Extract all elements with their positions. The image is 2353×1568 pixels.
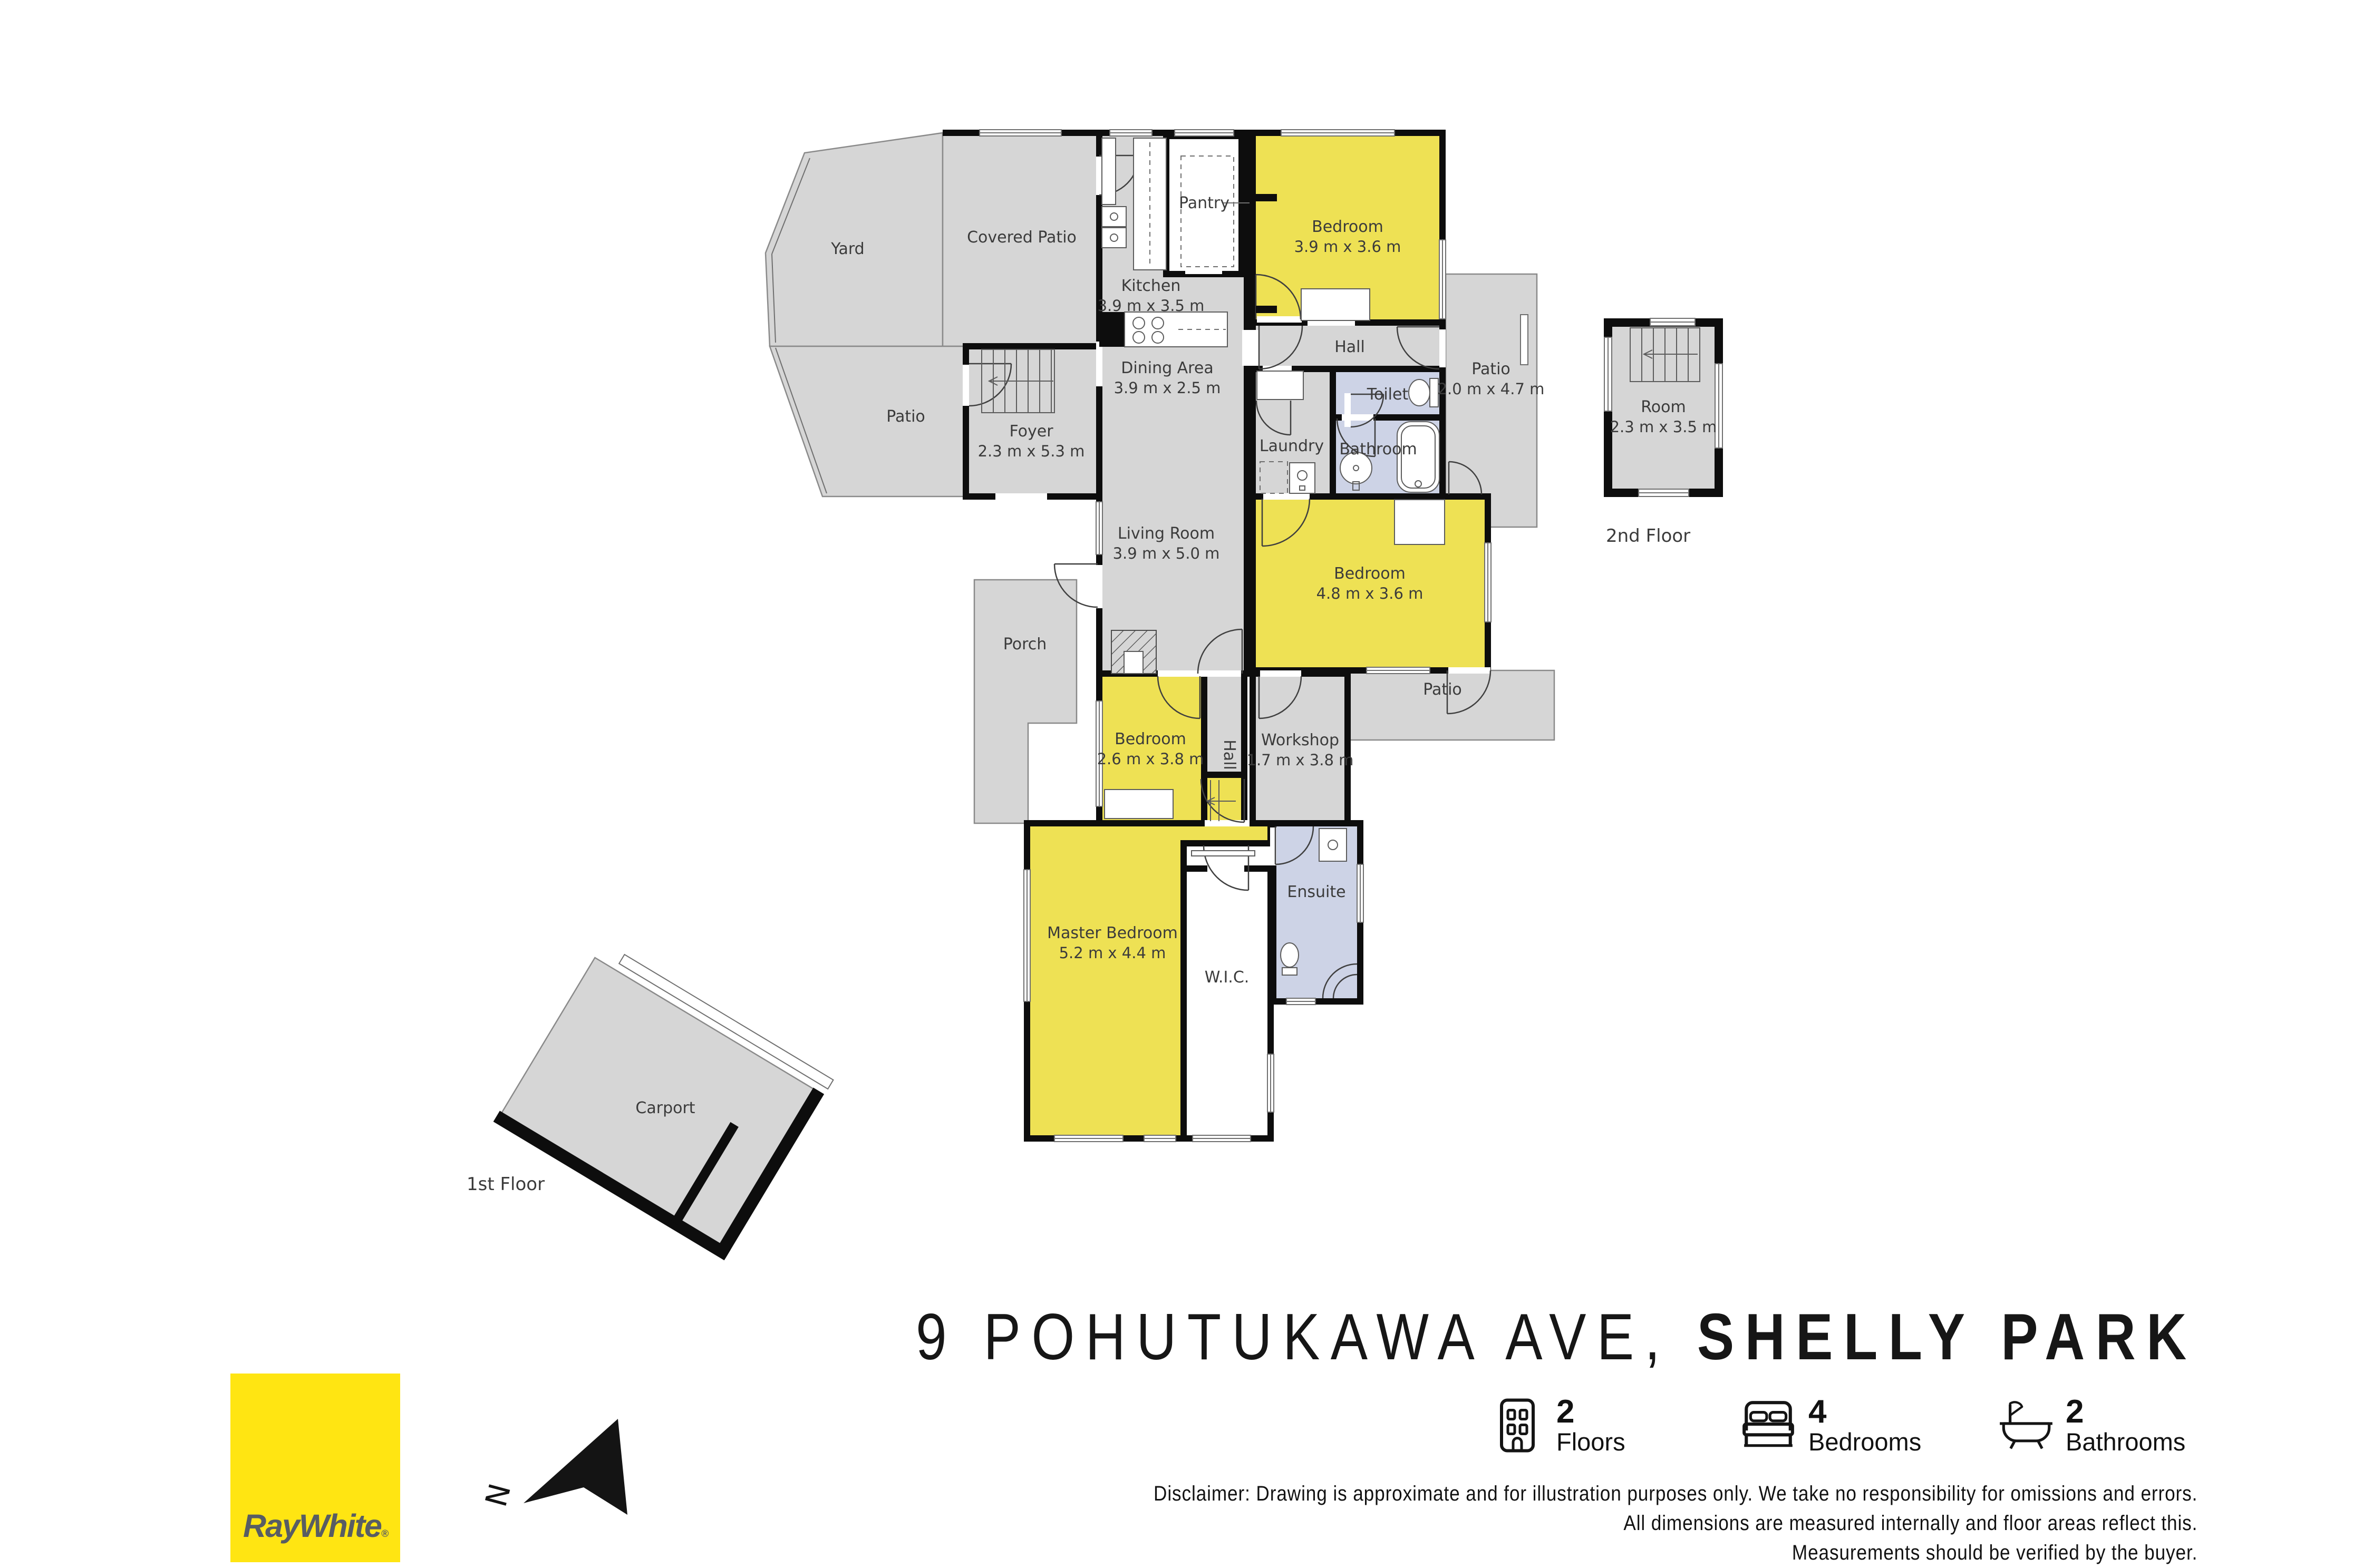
disclaimer-line-3: Measurements should be verified by the b… <box>1154 1538 2197 1567</box>
pantry-label: Pantry <box>1179 194 1229 212</box>
toilet-label: Toilet <box>1367 385 1409 404</box>
workshop-dims: 1.7 m x 3.8 m <box>1247 751 1354 769</box>
patio-left-area <box>770 346 966 496</box>
bedroom-small-dims: 2.6 m x 3.8 m <box>1097 750 1204 768</box>
building-icon <box>1493 1397 1546 1454</box>
stat-bathrooms: 2 Bathrooms <box>1998 1397 2185 1457</box>
north-label: N <box>479 1480 518 1510</box>
first-floor-label: 1st Floor <box>467 1174 545 1195</box>
bedrooms-label: Bedrooms <box>1808 1427 1921 1457</box>
patio-screen <box>1521 315 1528 365</box>
living-dims: 3.9 m x 5.0 m <box>1113 544 1220 562</box>
disclaimer-line-1: Disclaimer: Drawing is approximate and f… <box>1154 1479 2197 1508</box>
workshop-label: Workshop <box>1261 731 1339 749</box>
bedroom-mid-room <box>1253 496 1488 670</box>
room-2nd-dims: 2.3 m x 3.5 m <box>1610 418 1717 436</box>
porch-area <box>974 580 1077 823</box>
porch-label: Porch <box>1003 635 1047 654</box>
foyer-dims: 2.3 m x 5.3 m <box>978 442 1085 460</box>
ensuite-label: Ensuite <box>1287 883 1345 901</box>
yard-label: Yard <box>830 240 864 258</box>
bathrooms-value: 2 <box>2066 1397 2185 1427</box>
hall-upper-label: Hall <box>1334 338 1365 356</box>
wic-label: W.I.C. <box>1205 968 1250 987</box>
bedroom-top-label: Bedroom <box>1312 218 1383 236</box>
bathroom-label: Bathroom <box>1339 440 1417 459</box>
foyer-room <box>966 346 1099 496</box>
patio-upper-area <box>1446 274 1537 527</box>
patio-upper-dims: 2.0 m x 4.7 m <box>1438 380 1545 398</box>
kitchen-label: Kitchen <box>1121 277 1181 295</box>
dining-dims: 3.9 m x 2.5 m <box>1114 379 1221 397</box>
carport-label: Carport <box>635 1099 695 1117</box>
floors-value: 2 <box>1556 1397 1625 1427</box>
page-title: 9 POHUTUKAWA AVE, SHELLY PARK <box>916 1303 2197 1371</box>
bath-icon <box>1998 1397 2055 1454</box>
title-address: 9 POHUTUKAWA AVE, <box>916 1301 1671 1374</box>
bedroom-top-dims: 3.9 m x 3.6 m <box>1294 238 1401 256</box>
logo-registered-mark: ® <box>381 1528 388 1540</box>
bedroom-small-label: Bedroom <box>1115 730 1186 748</box>
patio-left-label: Patio <box>886 407 925 426</box>
stat-bedrooms: 4 Bedrooms <box>1739 1397 1921 1457</box>
hall-lower-label: Hall <box>1220 739 1238 770</box>
disclaimer: Disclaimer: Drawing is approximate and f… <box>1154 1479 2197 1567</box>
dining-label: Dining Area <box>1121 359 1213 377</box>
bed-icon <box>1739 1397 1798 1454</box>
title-suburb: SHELLY PARK <box>1697 1301 2197 1374</box>
wic-room <box>1184 869 1271 1138</box>
logo-brand-text: RayWhite <box>243 1508 381 1544</box>
master-label: Master Bedroom <box>1047 924 1178 942</box>
bedrooms-value: 4 <box>1808 1397 1921 1427</box>
kitchen-dims: 3.9 m x 3.5 m <box>1098 297 1205 315</box>
laundry-label: Laundry <box>1260 437 1324 455</box>
living-label: Living Room <box>1118 524 1215 543</box>
patio-lower-label: Patio <box>1423 680 1462 699</box>
foyer-label: Foyer <box>1009 422 1053 441</box>
raywhite-logo: RayWhite® <box>230 1374 400 1562</box>
bedroom-mid-label: Bedroom <box>1334 564 1406 583</box>
bedroom-mid-dims: 4.8 m x 3.6 m <box>1316 585 1424 602</box>
patio-upper-label: Patio <box>1471 360 1510 378</box>
covered-patio-label: Covered Patio <box>967 228 1077 247</box>
bathrooms-label: Bathrooms <box>2066 1427 2185 1457</box>
room-2nd-label: Room <box>1641 398 1686 416</box>
north-arrow: N <box>479 1419 627 1515</box>
stat-floors: 2 Floors <box>1493 1397 1625 1457</box>
disclaimer-line-2: All dimensions are measured internally a… <box>1154 1508 2197 1538</box>
second-floor-label: 2nd Floor <box>1606 525 1690 547</box>
floors-label: Floors <box>1556 1427 1625 1457</box>
master-dims: 5.2 m x 4.4 m <box>1059 944 1166 962</box>
